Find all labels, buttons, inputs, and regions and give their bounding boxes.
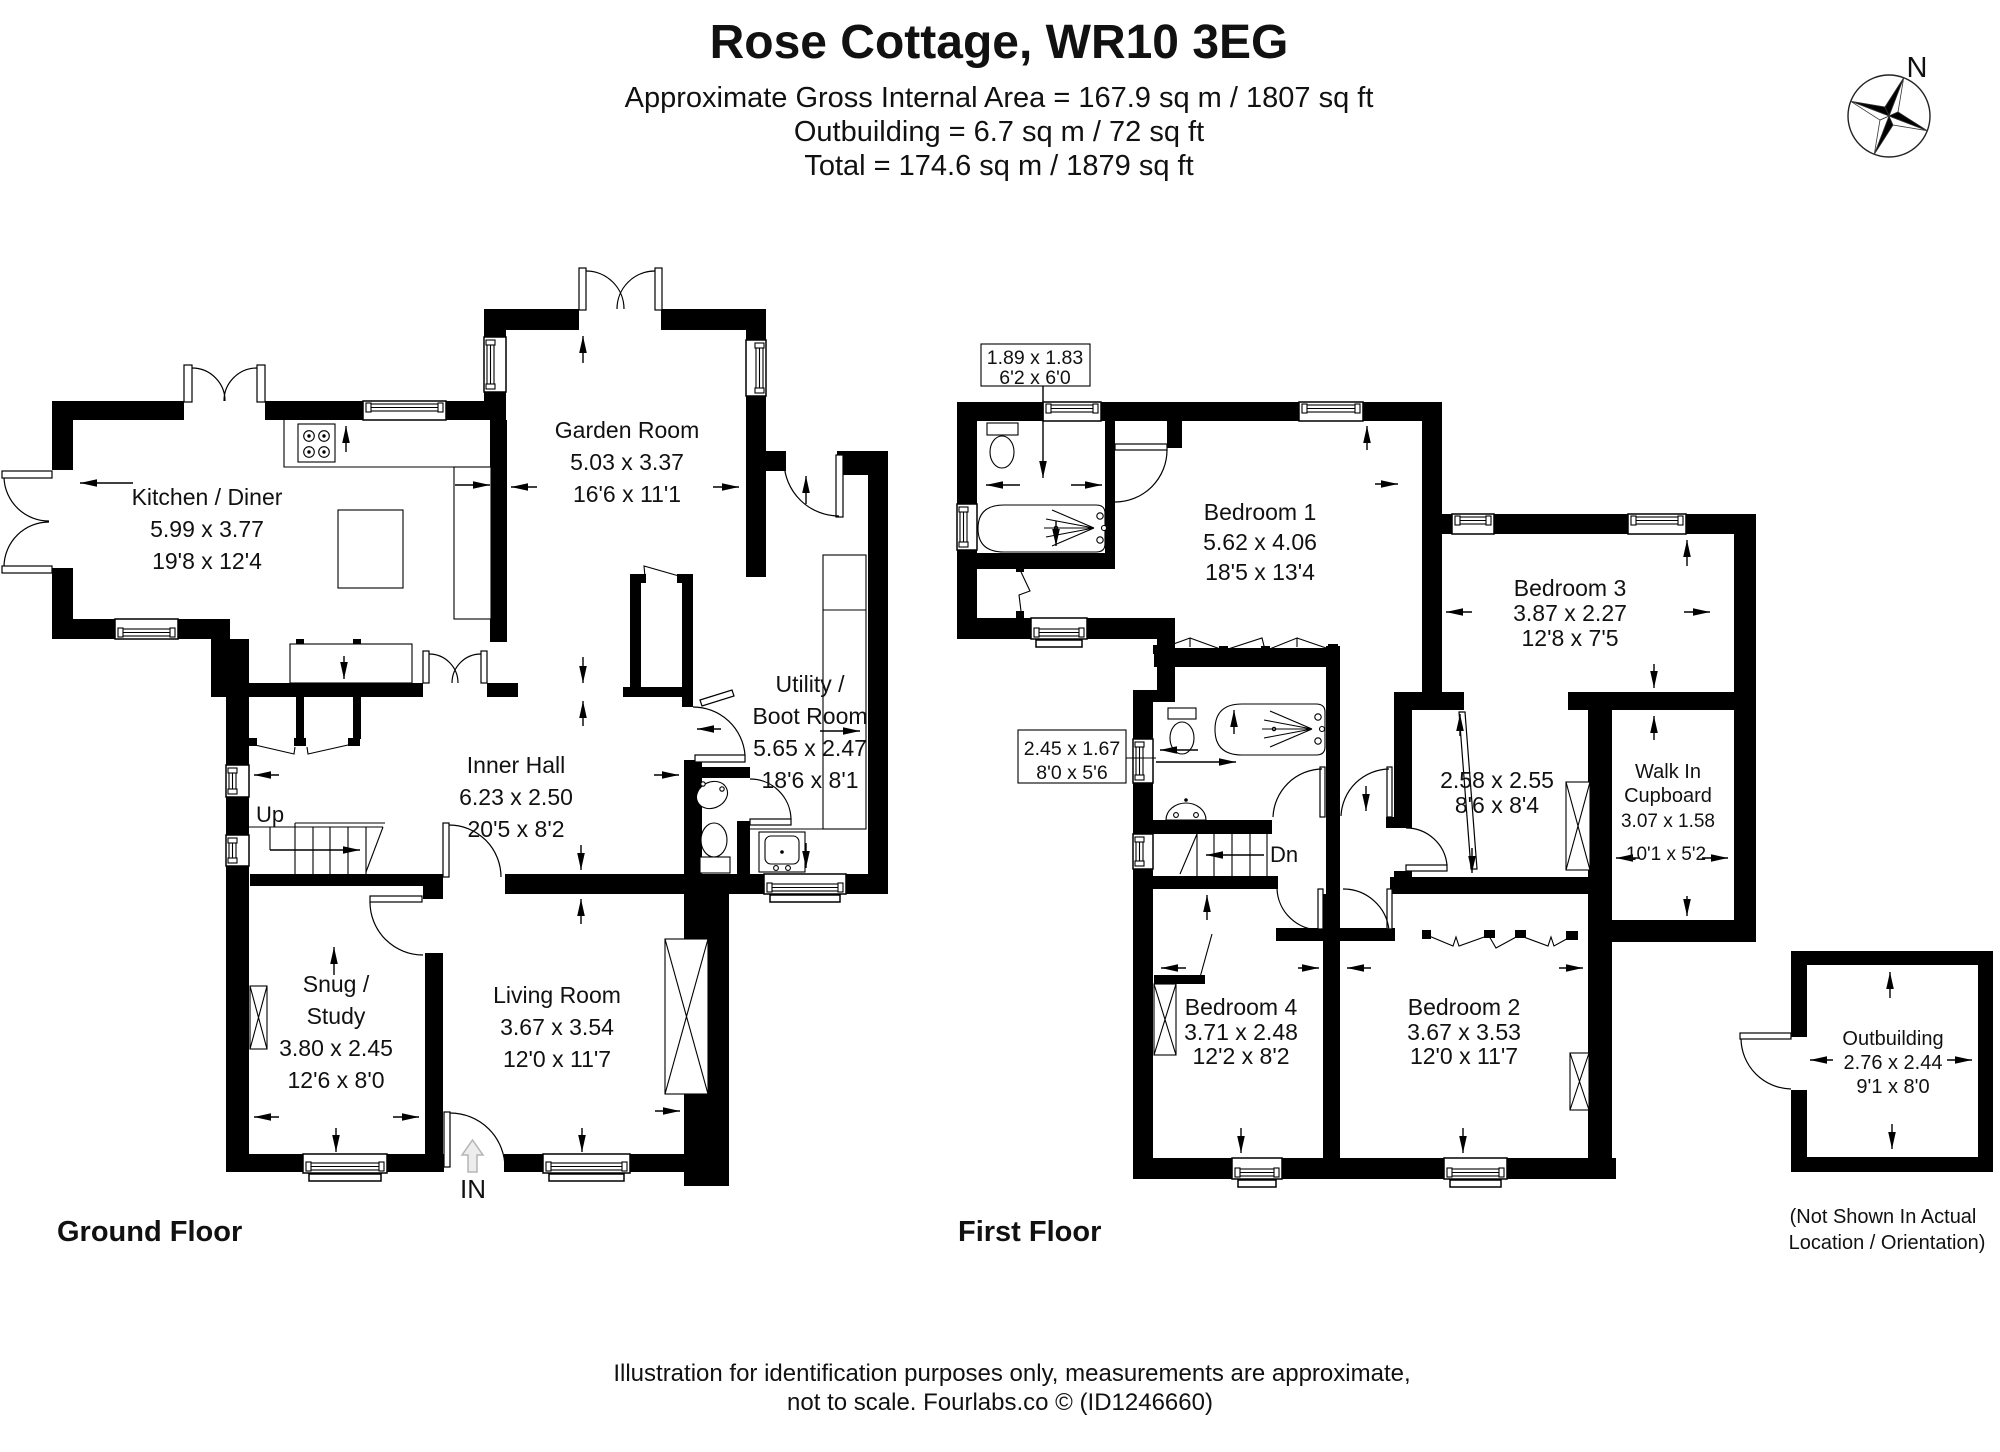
svg-text:6.23 x 2.50: 6.23 x 2.50: [459, 784, 573, 810]
svg-text:16'6 x 11'1: 16'6 x 11'1: [573, 481, 681, 507]
svg-text:12'0 x 11'7: 12'0 x 11'7: [1410, 1043, 1518, 1069]
svg-text:1.89 x 1.83: 1.89 x 1.83: [987, 347, 1084, 369]
svg-text:9'1 x 8'0: 9'1 x 8'0: [1856, 1076, 1929, 1098]
svg-text:Inner Hall: Inner Hall: [467, 752, 565, 778]
svg-text:Walk In: Walk In: [1635, 761, 1701, 783]
svg-text:8'0 x 5'6: 8'0 x 5'6: [1036, 762, 1107, 784]
svg-text:18'6 x 8'1: 18'6 x 8'1: [761, 767, 858, 793]
svg-text:Bedroom 2: Bedroom 2: [1408, 994, 1521, 1020]
svg-text:3.07 x 1.58: 3.07 x 1.58: [1621, 811, 1715, 832]
svg-text:Bedroom 4: Bedroom 4: [1185, 994, 1298, 1020]
svg-text:5.03 x 3.37: 5.03 x 3.37: [570, 449, 684, 475]
svg-text:Location / Orientation): Location / Orientation): [1789, 1232, 1986, 1254]
svg-text:Illustration for identificatio: Illustration for identification purposes…: [613, 1360, 1410, 1387]
svg-text:Living Room: Living Room: [493, 982, 621, 1008]
svg-text:(Not Shown In Actual: (Not Shown In Actual: [1790, 1206, 1977, 1228]
svg-text:Snug /: Snug /: [303, 971, 370, 997]
svg-text:19'8 x 12'4: 19'8 x 12'4: [152, 548, 262, 574]
svg-text:Bedroom 1: Bedroom 1: [1204, 499, 1317, 525]
svg-text:3.87 x 2.27: 3.87 x 2.27: [1513, 600, 1627, 626]
svg-text:5.65 x 2.47: 5.65 x 2.47: [753, 735, 867, 761]
svg-text:Boot Room: Boot Room: [752, 703, 867, 729]
svg-text:First Floor: First Floor: [958, 1216, 1101, 1248]
svg-text:10'1 x 5'2: 10'1 x 5'2: [1626, 844, 1706, 865]
svg-text:2.45 x 1.67: 2.45 x 1.67: [1024, 738, 1121, 760]
svg-text:3.67 x 3.54: 3.67 x 3.54: [500, 1014, 614, 1040]
svg-text:Outbuilding: Outbuilding: [1842, 1028, 1943, 1050]
svg-text:not to scale. Fourlabs.co © (I: not to scale. Fourlabs.co © (ID1246660): [787, 1389, 1213, 1416]
svg-text:Dn: Dn: [1270, 842, 1298, 867]
svg-text:IN: IN: [460, 1174, 486, 1204]
svg-text:2.58 x 2.55: 2.58 x 2.55: [1440, 767, 1554, 793]
svg-text:Garden Room: Garden Room: [555, 417, 699, 443]
svg-text:2.76 x 2.44: 2.76 x 2.44: [1844, 1052, 1943, 1074]
svg-text:3.80 x 2.45: 3.80 x 2.45: [279, 1035, 393, 1061]
svg-text:3.71 x 2.48: 3.71 x 2.48: [1184, 1019, 1298, 1045]
svg-text:N: N: [1907, 52, 1928, 84]
svg-text:5.99 x 3.77: 5.99 x 3.77: [150, 516, 264, 542]
svg-text:18'5 x 13'4: 18'5 x 13'4: [1205, 559, 1315, 585]
svg-text:Total = 174.6 sq m / 1879 sq f: Total = 174.6 sq m / 1879 sq ft: [804, 150, 1193, 182]
svg-text:Kitchen / Diner: Kitchen / Diner: [132, 484, 283, 510]
svg-text:3.67 x 3.53: 3.67 x 3.53: [1407, 1019, 1521, 1045]
svg-text:20'5 x 8'2: 20'5 x 8'2: [467, 816, 564, 842]
svg-text:Bedroom 3: Bedroom 3: [1514, 575, 1627, 601]
svg-text:12'2 x 8'2: 12'2 x 8'2: [1192, 1043, 1289, 1069]
svg-text:6'2 x 6'0: 6'2 x 6'0: [999, 367, 1071, 389]
svg-text:5.62 x 4.06: 5.62 x 4.06: [1203, 529, 1317, 555]
svg-text:Cupboard: Cupboard: [1624, 785, 1712, 807]
svg-text:Ground Floor: Ground Floor: [57, 1216, 242, 1248]
svg-text:Rose Cottage, WR10 3EG: Rose Cottage, WR10 3EG: [710, 16, 1289, 69]
svg-text:Utility /: Utility /: [776, 671, 846, 697]
svg-text:Outbuilding = 6.7 sq m / 72 sq: Outbuilding = 6.7 sq m / 72 sq ft: [794, 116, 1204, 148]
svg-text:Approximate Gross Internal Are: Approximate Gross Internal Area = 167.9 …: [625, 82, 1374, 114]
svg-text:Study: Study: [307, 1003, 366, 1029]
svg-text:Up: Up: [256, 802, 284, 827]
svg-text:8'6 x 8'4: 8'6 x 8'4: [1455, 792, 1539, 818]
svg-text:12'6 x 8'0: 12'6 x 8'0: [287, 1067, 384, 1093]
svg-text:12'0 x 11'7: 12'0 x 11'7: [503, 1046, 611, 1072]
svg-text:12'8 x 7'5: 12'8 x 7'5: [1521, 625, 1618, 651]
